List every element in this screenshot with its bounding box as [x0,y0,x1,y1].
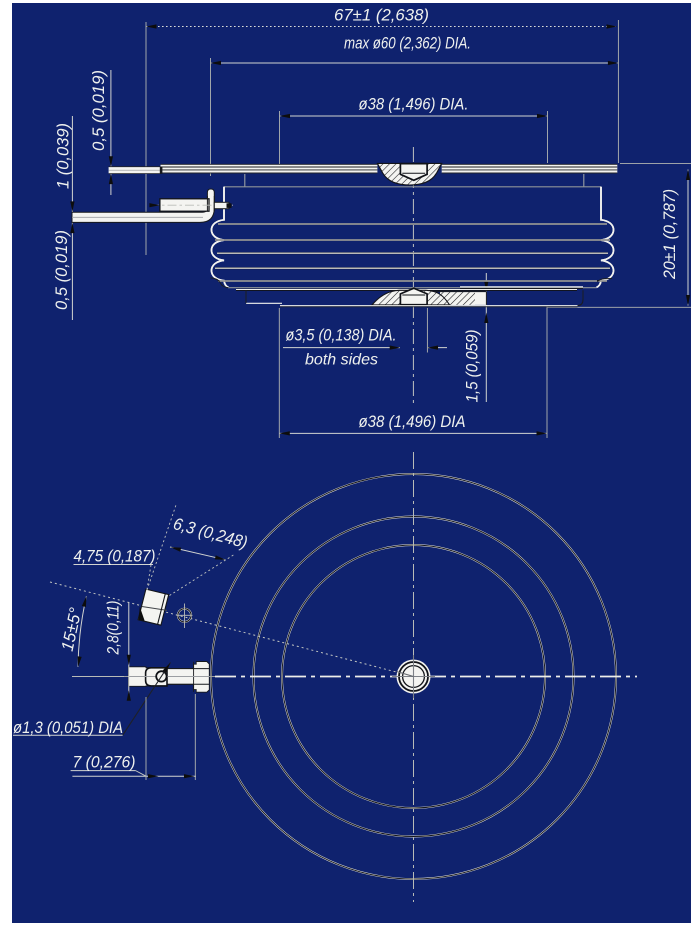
svg-text:ø3,5 (0,138) DIA.: ø3,5 (0,138) DIA. [286,326,397,345]
svg-text:0,5 (0,019): 0,5 (0,019) [89,70,108,151]
svg-text:max ø60 (2,362) DIA.: max ø60 (2,362) DIA. [344,34,471,53]
svg-text:1,5 (0,059): 1,5 (0,059) [463,330,482,403]
svg-text:0,5 (0,019): 0,5 (0,019) [52,230,71,310]
svg-text:1 (0,039): 1 (0,039) [54,123,73,189]
svg-text:4,75 (0,187): 4,75 (0,187) [74,547,156,566]
svg-text:2,8(0,11): 2,8(0,11) [104,601,123,656]
svg-text:20±1 (0,787): 20±1 (0,787) [660,189,679,280]
svg-text:7 (0,276): 7 (0,276) [73,753,136,772]
svg-text:ø38 (1,496) DIA: ø38 (1,496) DIA [359,412,466,431]
svg-text:ø38 (1,496) DIA.: ø38 (1,496) DIA. [359,95,469,114]
svg-text:ø1,3 (0,051) DIA: ø1,3 (0,051) DIA [13,718,123,737]
svg-text:67±1 (2,638): 67±1 (2,638) [334,6,429,25]
svg-text:both sides: both sides [305,352,378,369]
